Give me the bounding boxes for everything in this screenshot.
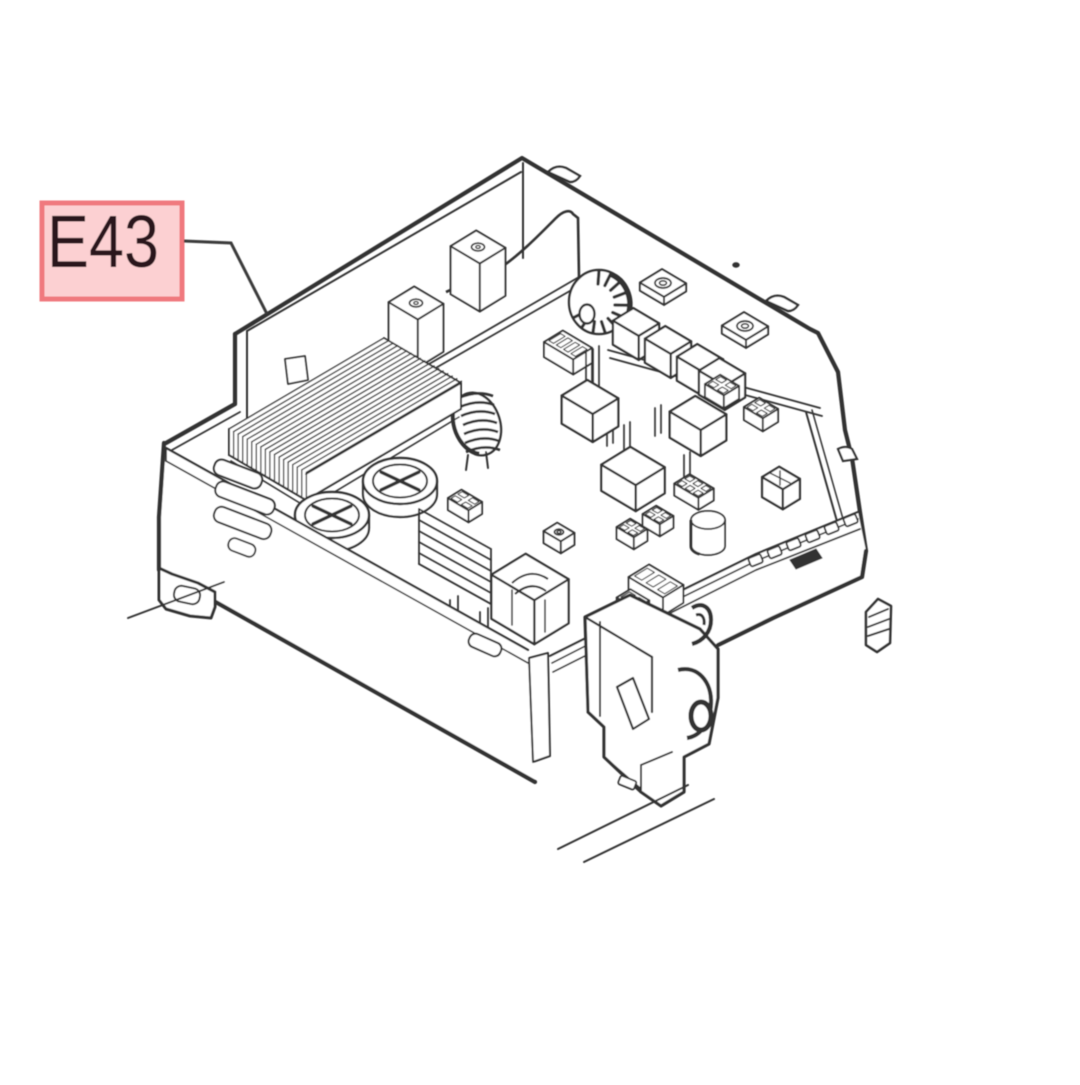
svg-text:E43: E43 xyxy=(47,200,159,283)
